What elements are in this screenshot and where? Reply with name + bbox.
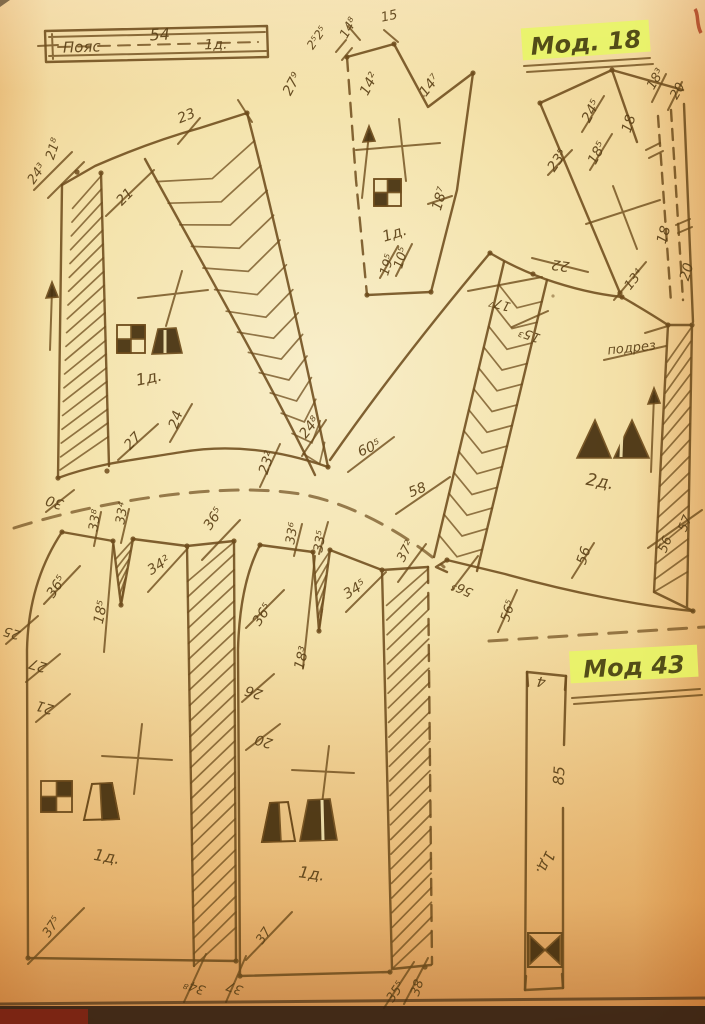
grain-arrow (50, 290, 52, 350)
measurement-label: 36⁵ (249, 600, 276, 629)
grain-arrow (362, 134, 369, 198)
pattern-point (387, 969, 392, 974)
measurement-label: 54 (149, 24, 170, 44)
fabric-trapezoid-symbols (262, 799, 337, 842)
model-43-label: Мод 43 (569, 645, 699, 685)
pattern-point (470, 70, 475, 75)
grain-arrow-head (363, 126, 375, 142)
pattern-point (55, 475, 60, 480)
measurement-label: 18⁷ (429, 185, 451, 212)
pattern-point (74, 169, 79, 174)
hatch-band (60, 176, 108, 470)
measurement-label: 30 (44, 491, 66, 512)
measurement-label: Пояс (63, 37, 102, 56)
pattern-point (690, 608, 695, 613)
pattern-point (327, 547, 332, 552)
piece-center-flare (330, 253, 702, 632)
measurement-label: 1д. (380, 221, 409, 246)
page-bottom-red-edge (0, 1009, 88, 1024)
pattern-point (689, 322, 694, 327)
measurement-label: 1д. (92, 845, 121, 868)
measurement-label: 56⁵ (449, 577, 475, 600)
sewing-pattern-scan: Пояс541д.2⁵2⁵14⁸1514²14⁷18⁷19⁵10⁵1д.24³2… (0, 0, 705, 1024)
pattern-point (257, 542, 262, 547)
pattern-point (537, 100, 542, 105)
measurement-label: 1д. (134, 366, 164, 390)
pattern-point (231, 538, 236, 543)
pattern-point (184, 543, 189, 548)
measurement-label: 18 (654, 224, 674, 246)
pattern-point (487, 250, 492, 255)
pattern-point (344, 54, 349, 59)
measurement-label: 33⁴ (113, 501, 132, 526)
pattern-point (665, 322, 670, 327)
measurement-label: 27⁹ (280, 70, 305, 99)
pattern-point (391, 41, 396, 46)
red-ink-mark (695, 9, 701, 33)
pattern-point (104, 468, 109, 473)
measurement-label: 34² (145, 552, 174, 578)
pattern-point (233, 958, 238, 963)
measurement-label: 37 (253, 924, 275, 947)
pattern-point (617, 290, 622, 295)
model-43-underline (572, 689, 702, 704)
pattern-point (428, 289, 433, 294)
fabric-trapezoid-symbol (152, 328, 182, 354)
measurement-label: 13⁴ (622, 266, 648, 293)
pattern-point (237, 973, 242, 978)
grain-cross (138, 271, 208, 326)
pattern-point (25, 955, 30, 960)
model-43-text: Мод 43 (583, 650, 686, 683)
measurement-label: 18³ (644, 66, 668, 92)
measurement-label: 2⁵2⁵ (304, 23, 330, 52)
paper-speck (423, 95, 425, 97)
pattern-point (118, 602, 123, 607)
measurement-label: 85 (549, 765, 568, 785)
model-18-label: Мод. 18 (521, 20, 651, 62)
hatch-band (654, 328, 691, 592)
measurement-label: подрез (607, 339, 657, 359)
model-18-underline (524, 58, 653, 72)
fabric-checker-symbol (374, 179, 401, 206)
measurement-label: 18³ (292, 644, 313, 671)
pattern-point (422, 964, 427, 969)
pattern-point (316, 628, 321, 633)
measurement-label: 1д. (204, 37, 228, 54)
measurement-label: 24³ (25, 161, 50, 187)
measurement-label: 18⁵ (91, 599, 112, 626)
hatch-shading (60, 141, 691, 968)
measurement-label: 4 (536, 672, 547, 689)
paper-speck (551, 294, 554, 297)
measurement-label: 20 (667, 80, 688, 102)
measurement-label: 25 (2, 623, 22, 642)
measurement-label: 21 (34, 697, 56, 717)
cut-separator-dashed-curve (14, 490, 444, 567)
measurement-label: 37 (224, 977, 245, 997)
piece-left-front (34, 100, 328, 512)
measurement-label: 36⁵ (43, 572, 70, 601)
cut-separator-dashed-line (489, 627, 705, 641)
page-corner-speck (0, 0, 10, 7)
pattern-point (130, 536, 135, 541)
measurement-label: 20 (677, 261, 697, 283)
fabric-bowtie-symbol (528, 933, 562, 967)
fabric-checker-symbol (117, 325, 145, 353)
grain-arrow-head (648, 388, 660, 404)
fabric-triangle-symbols (577, 420, 649, 458)
pattern-point (98, 170, 103, 175)
pattern-point (379, 567, 384, 572)
measurement-label: 60⁵ (355, 436, 383, 460)
hatch-band (188, 542, 236, 966)
measurement-label: 34⁸ (182, 976, 208, 998)
pattern-point (244, 110, 249, 115)
pattern-point (110, 538, 115, 543)
measurement-label: 22 (550, 256, 570, 274)
measurement-label: 24 (166, 409, 187, 431)
measurement-label: 1д. (532, 848, 559, 878)
measurement-label: 10⁵ (391, 245, 412, 270)
page-bottom-edge-line (0, 998, 705, 1004)
measurement-label: 14² (357, 70, 382, 99)
pattern-point (444, 557, 449, 562)
measurement-label: 33⁶ (283, 521, 302, 545)
measurement-label: 34⁵ (341, 576, 370, 602)
measurement-label: 27 (27, 655, 49, 675)
measurement-label: 37⁵ (40, 914, 65, 940)
measurement-label: 15 (380, 8, 399, 26)
measurement-label: 38 (408, 978, 427, 998)
grain-arrow (651, 396, 654, 472)
hatch-band (387, 569, 432, 968)
measurement-label: 33⁵ (311, 529, 330, 553)
measurement-label: 21⁸ (43, 136, 64, 161)
measurement-label: 20 (253, 731, 275, 751)
measurement-label: 1д. (297, 862, 326, 884)
measurement-label: 56 (656, 534, 676, 555)
pattern-sheet-page: Пояс541д.2⁵2⁵14⁸1514²14⁷18⁷19⁵10⁵1д.24³2… (0, 0, 705, 1024)
grain-arrow-head (46, 282, 58, 298)
pattern-point (364, 292, 369, 297)
measurement-label: 36⁵ (200, 504, 227, 533)
measurement-label: 56⁵ (498, 598, 519, 623)
measurement-label: 58 (406, 480, 429, 502)
piece-strip-mod43 (525, 672, 566, 990)
measurement-label: 2д. (584, 470, 615, 495)
grain-cross (292, 746, 354, 804)
pattern-point (530, 271, 535, 276)
measurement-label: 33⁸ (86, 508, 105, 532)
measurement-label: 18 (619, 113, 640, 135)
fabric-trapezoid-symbol (84, 783, 119, 820)
fabric-checker-symbol (41, 781, 72, 812)
pattern-point (609, 67, 614, 72)
page-bottom-shadow (0, 1006, 705, 1024)
measurement-label: 27 (121, 429, 145, 453)
pattern-point (59, 529, 64, 534)
pattern-point (325, 464, 330, 469)
